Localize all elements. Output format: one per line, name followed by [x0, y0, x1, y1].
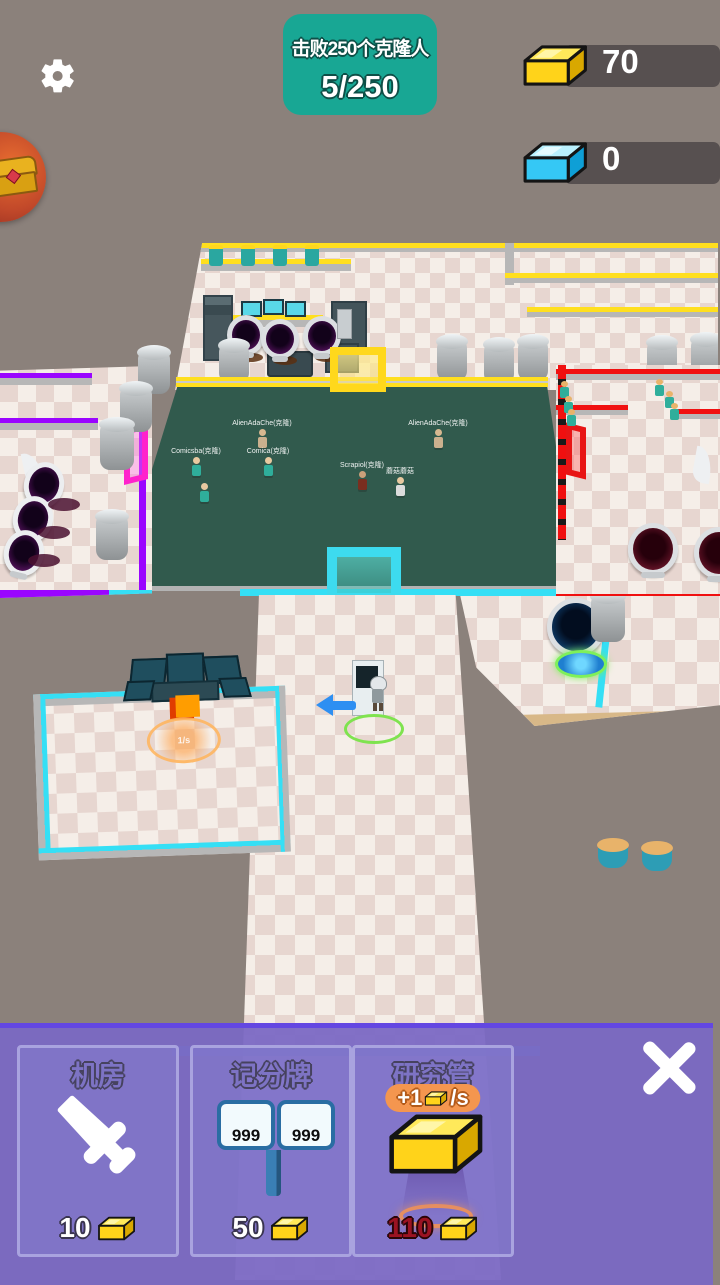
cost-value: 10	[59, 1212, 90, 1244]
clone-head-icon	[201, 483, 208, 490]
pipe-purple	[0, 590, 109, 598]
move-arrow-icon	[316, 694, 333, 716]
clone-body	[434, 437, 443, 448]
player-legs	[373, 703, 377, 711]
bin	[518, 341, 548, 381]
clone-character: Comicsba(克隆)	[164, 448, 228, 476]
fire-glow: 1/s	[146, 716, 222, 765]
pot-sand	[597, 838, 629, 852]
clone-nametag: 蘑菇蘑菇	[386, 468, 414, 476]
scoreboard-icon: 999 999	[217, 1100, 331, 1196]
wall	[33, 694, 51, 860]
clone-character: AlienAdaChe(克隆)	[230, 420, 294, 448]
cost-value: 50	[232, 1212, 263, 1244]
score-right: 999	[277, 1100, 335, 1150]
clone-character	[172, 482, 236, 502]
clone-character: AlienAdaChe(克隆)	[406, 420, 470, 448]
bin	[96, 516, 128, 560]
wall	[527, 307, 718, 317]
pipe-cyan	[109, 590, 152, 598]
wall	[0, 373, 92, 385]
gate-cyan	[327, 547, 401, 603]
clone-nametag: Comica(克隆)	[247, 448, 289, 456]
wall	[191, 243, 718, 252]
clone-character: 蘑菇蘑菇	[368, 468, 432, 496]
player-body	[372, 689, 383, 703]
bottle	[241, 245, 255, 266]
close-button[interactable]	[638, 1038, 700, 1098]
wall	[505, 273, 718, 283]
cost-row: 50	[193, 1212, 349, 1244]
arena-bottom-pipe	[240, 589, 577, 596]
sword-icon	[48, 1086, 152, 1190]
room-cyan: 1/s	[33, 686, 291, 861]
bottle	[273, 245, 287, 266]
clone-head-icon	[435, 429, 442, 436]
badge-unit: /s	[450, 1085, 468, 1111]
close-icon	[638, 1038, 700, 1098]
clone-portal	[628, 523, 678, 575]
clone-nametag: Comicsba(克隆)	[171, 448, 221, 456]
clone-body	[200, 491, 209, 502]
charge-pad	[555, 650, 607, 678]
gear-icon	[38, 56, 78, 96]
build-card-scoreboard[interactable]: 记分牌 999 999 50	[190, 1045, 352, 1257]
solar-panel	[166, 652, 205, 683]
player-legs	[379, 703, 383, 711]
crate-orange	[175, 695, 200, 718]
clone-body	[264, 465, 273, 476]
fire-rate-label: 1/s	[177, 735, 190, 745]
gold-bar-icon	[270, 1215, 310, 1242]
machine	[591, 596, 625, 642]
gate-red	[566, 423, 586, 480]
game-screen: { "hud": { "objective": { "line1": "击败25…	[0, 0, 720, 1280]
gold-bar-icon	[387, 1110, 487, 1178]
clone-head-icon	[193, 457, 200, 464]
badge-value: +1	[397, 1085, 422, 1111]
floor-spot	[28, 554, 60, 567]
chest-icon	[0, 155, 38, 199]
clone-head-icon	[265, 457, 272, 464]
wall	[556, 369, 720, 380]
bottle	[305, 245, 319, 266]
clone-body	[258, 437, 267, 448]
player-character	[370, 676, 386, 712]
cost-row: 10	[20, 1212, 176, 1244]
clone-body	[192, 465, 201, 476]
scoreboard-post	[266, 1150, 281, 1196]
clone-portal	[261, 319, 299, 359]
build-menu-panel: 机房 10 记分牌 999 999 50	[0, 1023, 713, 1285]
cost-value: 110	[387, 1212, 432, 1244]
bottle	[209, 245, 223, 266]
income-badge: +1 /s	[385, 1084, 480, 1112]
bin	[437, 341, 467, 381]
mini-clone	[567, 415, 576, 426]
wall	[0, 418, 98, 430]
room-red	[556, 365, 720, 603]
pot-sand	[641, 841, 673, 855]
clone-head-icon	[259, 429, 266, 436]
pot	[598, 844, 628, 868]
clone-head-icon	[397, 477, 404, 484]
gold-bar-icon	[439, 1215, 479, 1242]
bin	[100, 424, 134, 470]
clone-head-icon	[359, 471, 366, 478]
clone-body	[358, 479, 367, 490]
clone-character: Comica(克隆)	[236, 448, 300, 476]
clone-nametag: AlienAdaChe(克隆)	[232, 420, 292, 428]
solar-panel	[123, 680, 155, 701]
build-card-machine-room[interactable]: 机房 10	[17, 1045, 179, 1257]
platform-right	[455, 596, 720, 726]
door-panel	[337, 309, 352, 339]
monitor	[263, 299, 284, 315]
platform-edge	[455, 710, 720, 726]
settings-button[interactable]	[38, 56, 78, 96]
card-title: 记分牌	[193, 1054, 349, 1093]
clone-body	[396, 485, 405, 496]
mini-clone	[655, 385, 664, 396]
gold-bar-icon	[97, 1215, 137, 1242]
mini-clone	[670, 409, 679, 420]
lamp	[691, 446, 715, 485]
clone-portal	[694, 527, 720, 579]
build-card-research[interactable]: 研究管 +1 /s 110	[352, 1045, 514, 1257]
clone-nametag: AlienAdaChe(克隆)	[408, 420, 468, 428]
wall	[672, 409, 720, 419]
monitor	[285, 301, 306, 317]
gold-nugget-icon	[424, 1090, 448, 1107]
cost-row: 110	[355, 1212, 511, 1244]
move-arrow-icon	[332, 701, 356, 710]
score-left: 999	[217, 1100, 275, 1150]
floor-spot	[38, 526, 70, 539]
player-range-ring	[344, 714, 404, 744]
floor-spot	[48, 498, 80, 511]
pot	[642, 847, 672, 871]
gate-yellow	[330, 347, 386, 392]
solar-panel	[218, 677, 252, 698]
